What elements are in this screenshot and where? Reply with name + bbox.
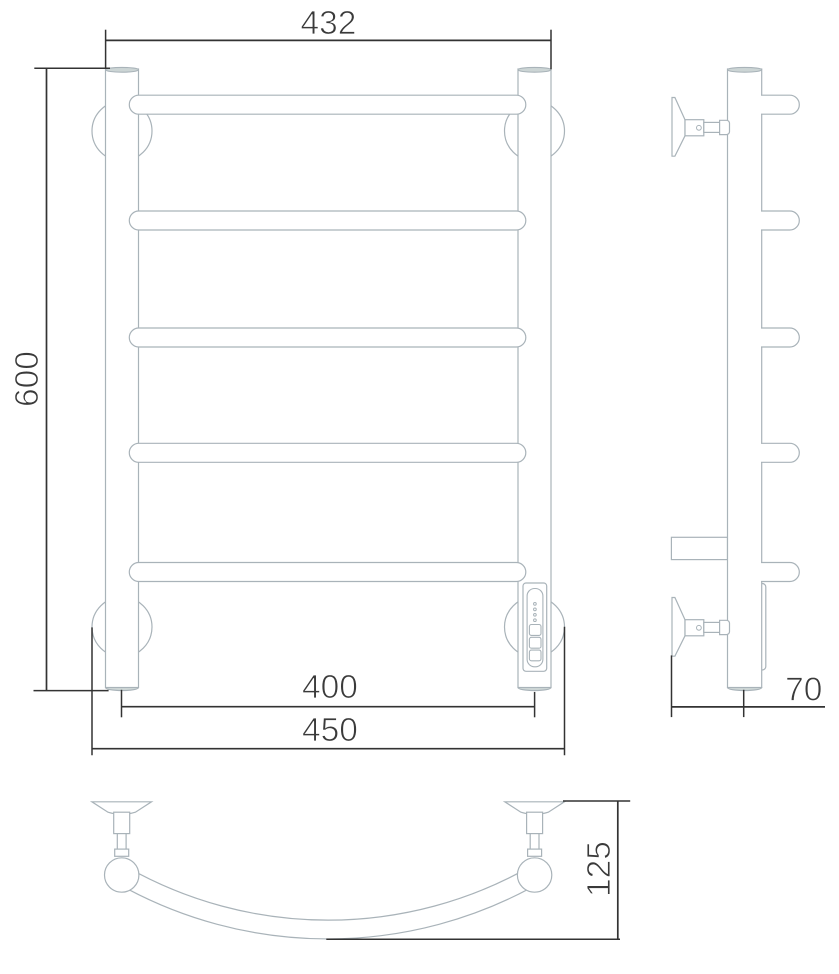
svg-text:432: 432 (301, 5, 357, 42)
svg-text:450: 450 (302, 712, 358, 749)
svg-text:400: 400 (302, 669, 358, 706)
svg-text:125: 125 (581, 841, 618, 897)
svg-text:600: 600 (9, 351, 46, 407)
svg-text:70: 70 (785, 672, 822, 709)
